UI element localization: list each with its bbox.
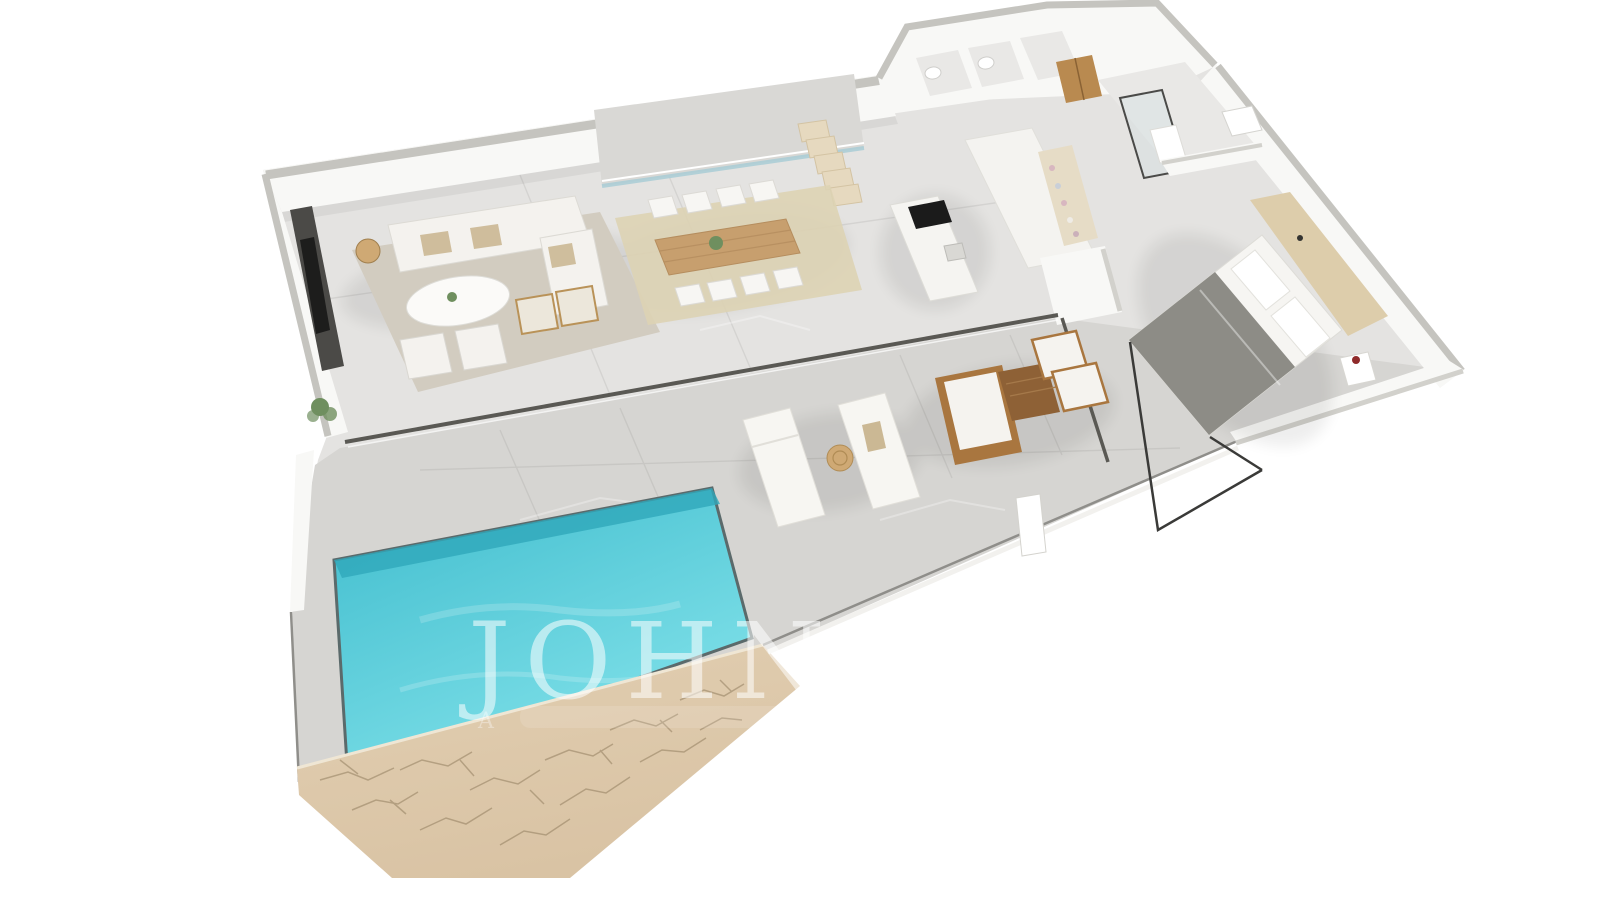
watermark: JOHN T A: [459, 600, 971, 734]
armchair: [455, 324, 507, 370]
round-side-table: [356, 239, 380, 263]
red-lamp: [1352, 356, 1360, 364]
pendant-lamp: [1297, 235, 1303, 241]
watermark-line1: JOHN T: [459, 600, 971, 723]
watermark-tagline-blur: [520, 706, 840, 728]
dining-chair: [648, 196, 678, 218]
dining-chair: [749, 180, 779, 202]
table-plant: [447, 292, 457, 302]
dining-chair: [675, 284, 705, 306]
plant-centerpiece: [709, 236, 723, 250]
dining-chair: [740, 273, 770, 295]
accent-chair: [556, 286, 598, 326]
sink: [944, 243, 966, 261]
dining-chair: [716, 185, 746, 207]
watermark-line2: A: [477, 709, 500, 734]
dining-chair: [773, 267, 803, 289]
rattan-side-table: [827, 445, 853, 471]
dining-chair: [682, 191, 712, 213]
dining-chair: [707, 279, 737, 301]
armchair: [400, 333, 452, 379]
accent-chair: [516, 294, 558, 334]
floorplan-render: JOHN T A: [0, 0, 1600, 900]
